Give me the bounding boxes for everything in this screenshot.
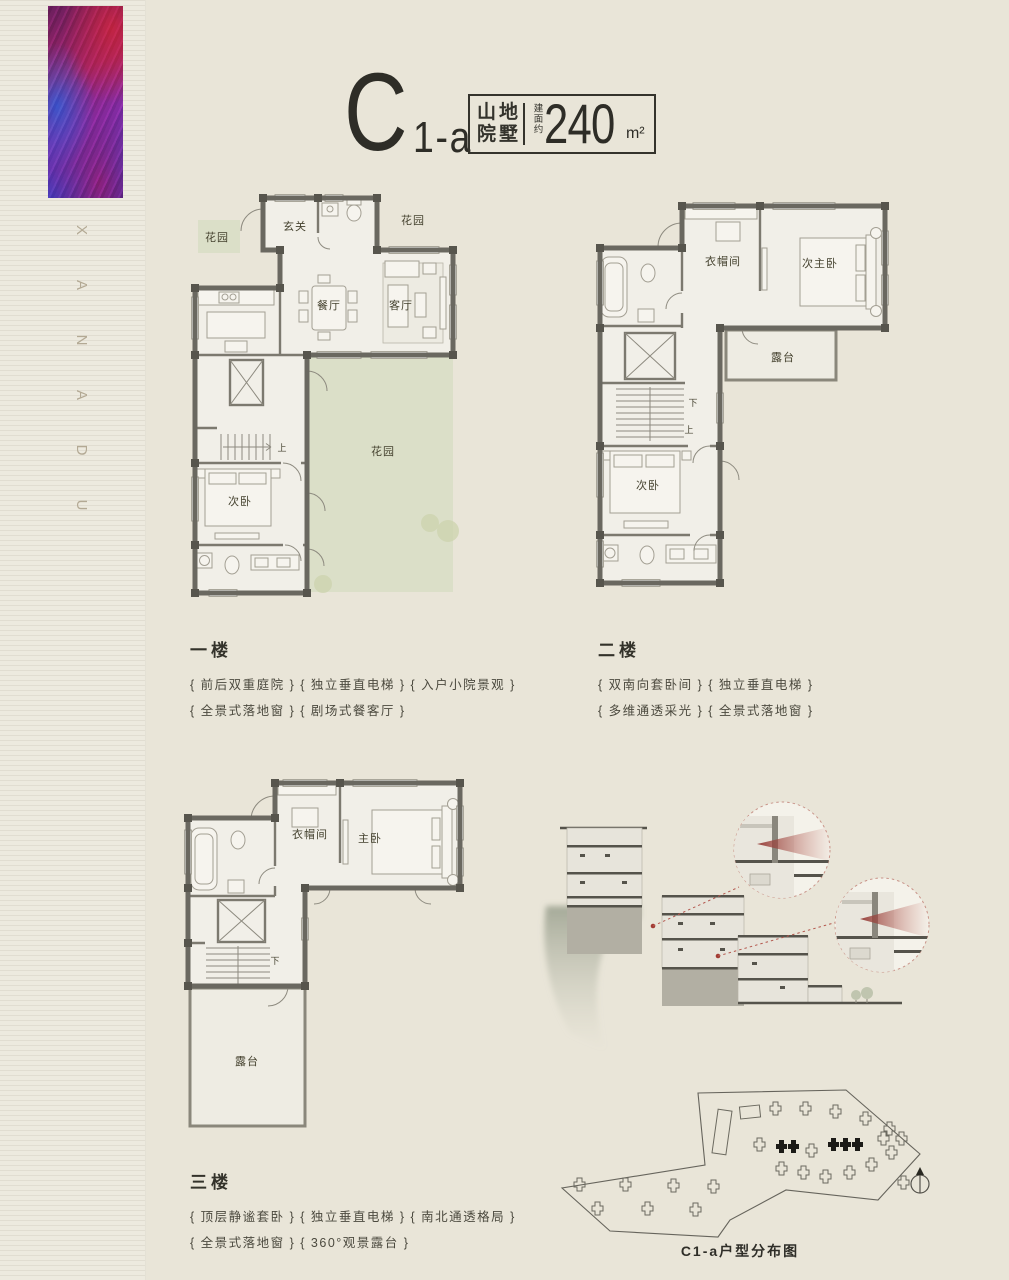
floor3-plan: 衣帽间 主卧 下 露台 — [180, 768, 465, 1158]
room-label-bedroom: 次卧 — [636, 478, 660, 492]
room-label-second-master: 次主卧 — [802, 256, 838, 270]
floor1-plan: 花园 玄关 花园 餐厅 客厅 上 次卧 花园 — [185, 193, 465, 603]
view-callout-1 — [734, 802, 834, 898]
room-label-closet: 衣帽间 — [292, 827, 328, 841]
floor1-features-line1: { 前后双重庭院 } { 独立垂直电梯 } { 入户小院景观 } — [190, 672, 620, 698]
brand-letter: D — [70, 440, 90, 460]
room-label-bedroom: 次卧 — [228, 494, 252, 508]
floor3-features-line2: { 全景式落地窗 } { 360°观景露台 } — [190, 1230, 620, 1256]
room-label-garden-right: 花园 — [401, 214, 425, 227]
area-unit: m² — [626, 125, 645, 143]
site-buildings — [574, 1102, 909, 1216]
spec-divider — [523, 103, 525, 145]
stairs-up-label: 上 — [277, 443, 286, 453]
floor3-name: 三楼 — [190, 1168, 620, 1193]
room-label-garden-left: 花园 — [205, 231, 229, 244]
floor2-description: 二楼 { 双南向套卧间 } { 独立垂直电梯 } { 多维通透采光 } { 全景… — [598, 636, 1009, 724]
room-label-living: 客厅 — [389, 298, 413, 312]
room-label-dining: 餐厅 — [317, 298, 341, 312]
unit-code-sub: 1-a — [413, 118, 472, 158]
villa-type-name: 山地院墅 — [477, 102, 521, 147]
sidebar: X A N A D U — [0, 0, 146, 1280]
brand-letter: A — [70, 275, 90, 295]
floor3-features-line1: { 顶层静谧套卧 } { 独立垂直电梯 } { 南北通透格局 } — [190, 1204, 620, 1230]
area-value: 240 — [544, 99, 615, 148]
floor3-description: 三楼 { 顶层静谧套卧 } { 独立垂直电梯 } { 南北通透格局 } { 全景… — [190, 1168, 620, 1256]
room-label-entry: 玄关 — [283, 219, 307, 233]
unit-title: C 1-a — [344, 66, 483, 158]
floor2-features-line1: { 双南向套卧间 } { 独立垂直电梯 } — [598, 672, 1009, 698]
hillside-section-illustration — [510, 788, 950, 1070]
floor2-plan: 衣帽间 次主卧 露台 下 上 次卧 — [590, 193, 900, 608]
room-label-closet: 衣帽间 — [705, 254, 741, 268]
spec-box: 山地院墅 建面约 240 m² — [468, 94, 656, 154]
view-callout-2 — [835, 878, 930, 972]
north-arrow-icon — [911, 1167, 929, 1193]
artwork-image — [48, 6, 123, 198]
stairs-up-label: 上 — [684, 425, 693, 435]
brand-letter: U — [70, 495, 90, 515]
brand-letter: X — [70, 220, 90, 240]
floor1-description: 一楼 { 前后双重庭院 } { 独立垂直电梯 } { 入户小院景观 } { 全景… — [190, 636, 620, 724]
stairs-down-label: 下 — [270, 956, 279, 966]
room-label-terrace: 露台 — [771, 350, 795, 364]
room-label-terrace: 露台 — [235, 1054, 259, 1068]
room-label-garden-main: 花园 — [371, 445, 395, 458]
site-plan-caption: C1-a户型分布图 — [590, 1241, 890, 1261]
brand-letter: N — [70, 330, 90, 350]
unit-code-main: C — [344, 68, 406, 158]
site-buildings-highlighted — [776, 1138, 863, 1153]
floor2-name: 二楼 — [598, 636, 1009, 661]
stairs-down-label: 下 — [688, 398, 697, 408]
floor1-name: 一楼 — [190, 636, 620, 661]
brand-letter: A — [70, 385, 90, 405]
room-label-master: 主卧 — [358, 832, 382, 845]
floor2-features-line2: { 多维通透采光 } { 全景式落地窗 } — [598, 698, 1009, 724]
area-label: 建面约 — [532, 103, 542, 145]
floor1-features-line2: { 全景式落地窗 } { 剧场式餐客厅 } — [190, 698, 620, 724]
